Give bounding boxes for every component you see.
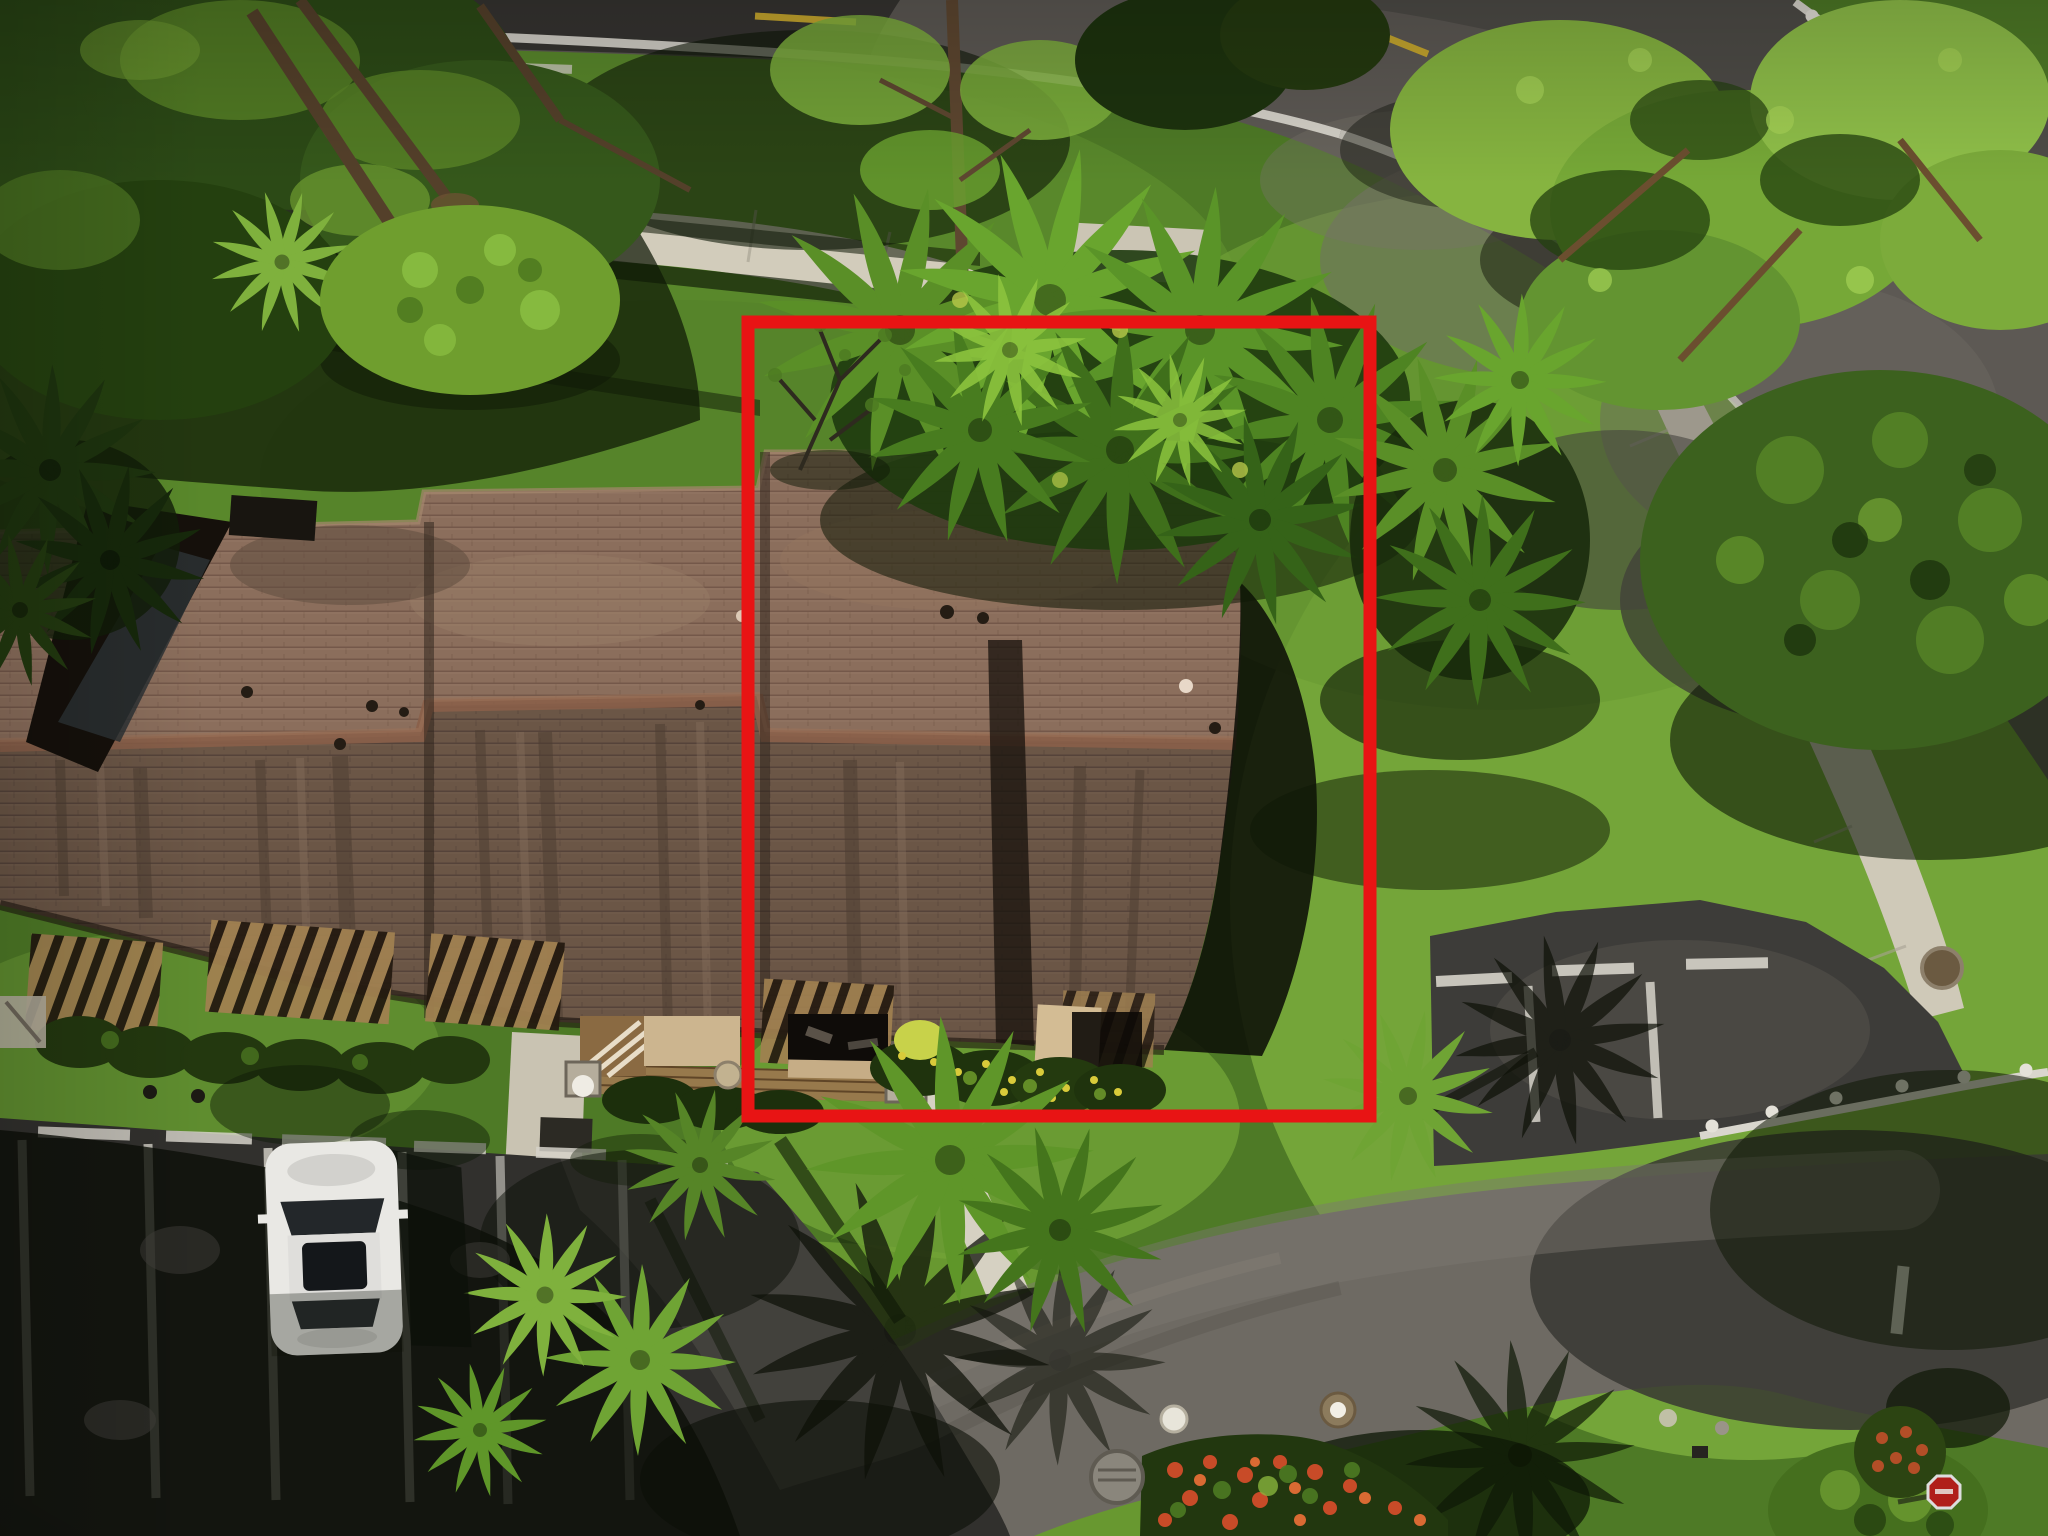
lime-tree — [320, 205, 620, 395]
aerial-photo — [0, 0, 2048, 1536]
parked-white-car — [255, 1137, 471, 1356]
aerial-photo-canvas — [0, 0, 2048, 1536]
manhole-on-sidewalk — [1922, 948, 1962, 988]
pergola-3 — [425, 933, 565, 1030]
paver — [715, 1062, 741, 1088]
tile-patio — [644, 1016, 740, 1066]
pergola-2 — [205, 920, 395, 1025]
manhole-lawn — [1091, 1451, 1143, 1503]
